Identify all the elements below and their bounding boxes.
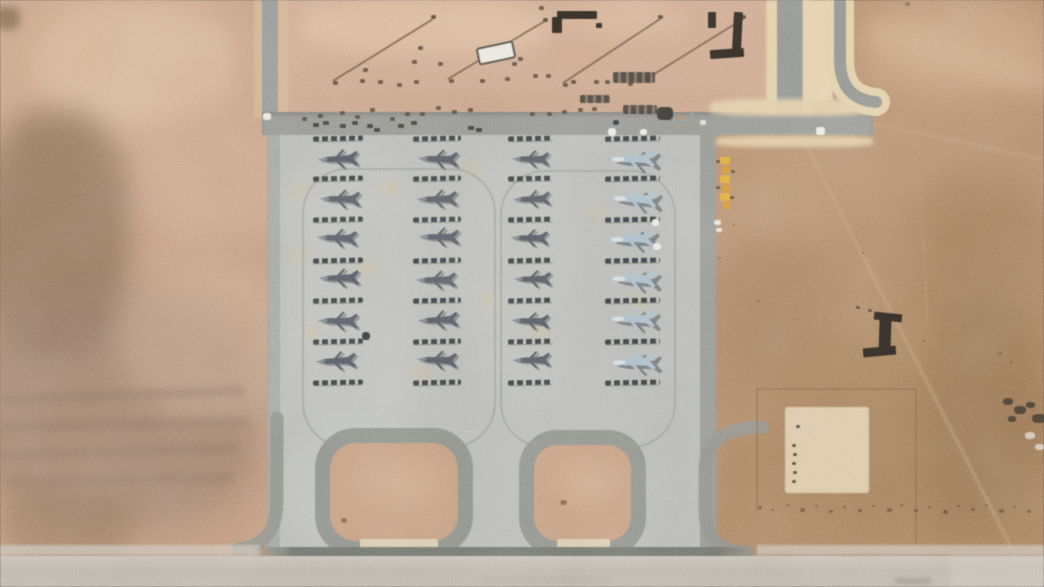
structure-speck [856, 306, 860, 309]
fighter-jet [317, 308, 359, 335]
tie-down-strip [413, 297, 461, 303]
yard-line-anchor [431, 15, 436, 19]
tie-down-strip [507, 298, 552, 304]
yard-vehicle [436, 106, 441, 110]
yard-vehicle [405, 112, 410, 116]
dark-debris [1014, 406, 1026, 414]
shelter-frame-structure [708, 12, 716, 28]
white-support-object [652, 219, 659, 226]
road-vehicle-white [816, 127, 825, 135]
compound-boundary [756, 388, 916, 390]
white-support-object [653, 243, 661, 250]
fighter-jet [318, 265, 360, 292]
fighter-jet [317, 145, 360, 172]
tie-down-strip [413, 338, 461, 344]
small-colored-object [690, 113, 694, 116]
yellow-crane-segment [720, 157, 730, 164]
yard-vehicle [418, 46, 423, 50]
fighter-jet [415, 267, 457, 293]
yard-vehicle [438, 62, 443, 66]
scrub-bush [758, 506, 762, 509]
tie-down-strip [313, 216, 363, 222]
shelter-frame-structure [557, 11, 597, 19]
yard-vehicle [480, 79, 485, 83]
apron-road-vehicle [352, 121, 358, 125]
pad-vehicle [796, 425, 800, 428]
dark-debris [1008, 416, 1016, 422]
loop-infield-dirt [534, 445, 631, 541]
scrub-bush [771, 509, 774, 511]
tie-down-strip [313, 338, 363, 344]
dark-debris [1003, 398, 1013, 405]
shelter-frame-structure [552, 17, 562, 33]
tie-down-strip [507, 176, 552, 182]
scrub-bush [800, 508, 805, 512]
dark-vehicle-blob [657, 107, 673, 120]
tie-down-strip [413, 257, 461, 263]
yard-vehicle [363, 68, 368, 72]
runway-edge-light [0, 545, 260, 555]
tie-down-strip [413, 135, 461, 141]
desert-track [873, 122, 1042, 161]
apron-bottom-edge [252, 547, 757, 556]
yard-vehicle [302, 117, 307, 121]
yard-vehicle [390, 117, 395, 121]
runway-light-corner [950, 556, 1044, 587]
tie-down-strip [313, 135, 363, 141]
white-object [714, 220, 721, 225]
small-colored-object [680, 116, 684, 119]
scrub-bush [999, 509, 1004, 513]
yard-vehicle [378, 80, 383, 84]
fighter-jet [417, 306, 460, 333]
crane-mark [716, 186, 720, 189]
terrain-patch [700, 240, 830, 380]
terrain-patch [748, 150, 868, 240]
yard-vehicle [468, 108, 473, 112]
tie-down-strip [413, 379, 461, 385]
runway-smudge [895, 578, 931, 584]
fighter-jet [418, 224, 460, 251]
runway-smudge [480, 577, 610, 584]
fighter-jet [511, 186, 551, 211]
pad-vehicle [792, 444, 796, 447]
fighter-jet [416, 186, 458, 213]
gray-dash-object [686, 124, 692, 127]
terrain-speckle [922, 340, 925, 342]
yard-light-patch [560, 0, 690, 40]
scrub-bush [815, 505, 818, 507]
yard-vehicle [452, 110, 457, 114]
apron-road-vehicle [374, 128, 380, 132]
scrub-bush [872, 505, 875, 507]
terrain-speckle [905, 2, 910, 6]
yard-vehicle [518, 57, 523, 61]
fighter-jet [510, 308, 550, 333]
apron-road-vehicle [323, 121, 329, 125]
scrub-bush [914, 509, 918, 512]
yellow-crane-segment [720, 175, 730, 183]
light-debris [1035, 444, 1044, 450]
fighter-jet [509, 226, 548, 251]
crane-mark [731, 170, 735, 173]
apron-road-vehicle [340, 124, 346, 128]
pad-vehicle [793, 471, 797, 474]
apron-road-vehicle [313, 123, 319, 127]
tie-down-strip [507, 380, 552, 386]
yard-vehicle [539, 6, 544, 10]
gray-dash-object [677, 127, 683, 130]
yellow-crane-segment [722, 166, 730, 173]
fighter-jet [511, 348, 550, 373]
yard-vehicle [533, 74, 538, 78]
fighter-jet [417, 145, 460, 172]
scrub-bush [900, 504, 903, 506]
yard-vehicle [318, 114, 323, 118]
fighter-jet [606, 305, 658, 333]
white-object [716, 228, 722, 232]
yard-vehicle [360, 79, 365, 83]
terrain-speckle [998, 352, 1002, 355]
shelter-frame-structure [596, 23, 602, 28]
loop-infield-dirt [330, 443, 458, 541]
dark-support-object [362, 332, 370, 340]
fighter-jet [319, 186, 361, 213]
fighter-jet [606, 145, 658, 174]
yellow-crane-segment [723, 202, 730, 209]
fighter-jet [605, 224, 658, 254]
scrub-bush [858, 509, 862, 512]
yard-vehicle [530, 112, 535, 116]
road-shoulder-cream [803, 0, 833, 102]
dirt-speck [560, 500, 567, 505]
apron-road-vehicle [398, 124, 404, 128]
yard-vehicle [397, 83, 402, 87]
apron-road-vehicle [476, 128, 482, 132]
tie-down-strip [413, 216, 461, 222]
yard-vehicle [512, 62, 517, 66]
yard-vehicle [414, 80, 419, 84]
yard-vehicle [340, 111, 345, 115]
tie-down-strip [313, 175, 363, 181]
terrain-speckle [862, 252, 864, 254]
yard-vehicle [505, 77, 510, 81]
tie-down-strip [313, 297, 363, 303]
equipment-row [580, 95, 610, 103]
white-support-object [640, 129, 647, 135]
yard-vehicle [412, 60, 417, 64]
scrub-bush [843, 506, 846, 508]
scrub-bush [971, 508, 975, 511]
yellow-crane-segment [722, 185, 730, 192]
yard-vehicle [547, 112, 552, 116]
yard-vehicle [594, 80, 599, 84]
tie-down-strip [507, 136, 552, 142]
yard-vehicle [333, 81, 338, 85]
light-debris [1025, 432, 1035, 439]
road-vehicle-white [263, 113, 271, 120]
apron-road-vehicle [411, 121, 417, 125]
yard-vehicle [420, 112, 425, 116]
yard-vehicle [592, 107, 597, 111]
fighter-jet [607, 265, 659, 294]
crane-mark [716, 160, 720, 163]
yard-vehicle [571, 80, 576, 84]
tie-down-strip [313, 379, 363, 385]
apron-left-edge [267, 135, 280, 555]
i-beam-structure [863, 346, 897, 358]
yard-vehicle [605, 80, 610, 84]
fighter-jet [513, 267, 552, 291]
fighter-jet [416, 346, 459, 373]
tie-down-strip [413, 175, 461, 181]
satellite-image-airbase [0, 0, 1044, 587]
dark-debris [1032, 414, 1044, 423]
gray-dash-object [668, 124, 674, 127]
fighter-jet [607, 347, 660, 377]
equipment-row [613, 72, 655, 83]
fighter-jet [316, 224, 359, 251]
pad-vehicle [792, 480, 796, 483]
yard-vehicle [563, 83, 568, 87]
scrub-bush [1027, 510, 1031, 513]
dirt-speck [341, 518, 347, 523]
pad-vehicle [792, 462, 796, 465]
small-colored-object [700, 120, 706, 125]
scrub-bush [887, 508, 892, 512]
tie-down-strip [507, 217, 552, 223]
yard-line-anchor [543, 18, 548, 22]
terrain-speckle [733, 224, 735, 226]
apron-road-vehicle [367, 124, 373, 128]
scrub-bush [786, 504, 789, 506]
runway-edge-light [757, 545, 1044, 555]
pad-vehicle [793, 453, 797, 456]
yard-line-anchor [658, 15, 663, 19]
terrain-patch [0, 6, 20, 30]
equipment-row [623, 105, 657, 114]
yard-vehicle [578, 108, 583, 112]
road-shoulder-cream [710, 99, 873, 116]
compound-boundary [915, 388, 917, 546]
yard-light-patch [285, 92, 765, 114]
yard-vehicle [370, 108, 375, 112]
apron-right-edge [700, 135, 716, 555]
road-shoulder-cream [716, 136, 873, 147]
fighter-jet [315, 347, 358, 374]
compound-boundary [756, 388, 758, 510]
dark-support-object [613, 120, 619, 125]
apron-road-vehicle [468, 126, 474, 130]
fighter-jet [608, 184, 661, 214]
yard-vehicle [449, 79, 454, 83]
taxi-road-left-vertical [262, 0, 278, 116]
tie-down-strip [507, 339, 552, 345]
scrub-bush [943, 510, 948, 514]
structure-speck [868, 309, 872, 312]
tie-down-strip [313, 257, 363, 263]
yard-vehicle [355, 115, 360, 119]
photo-layer [0, 0, 1044, 587]
terrain-patch [920, 300, 1044, 530]
crane-mark [730, 196, 734, 199]
dark-debris [1026, 402, 1035, 408]
fighter-jet [510, 147, 549, 172]
yard-vehicle [546, 74, 551, 78]
cleared-pad [785, 407, 869, 493]
scrub-bush [928, 506, 931, 508]
white-support-object [608, 128, 616, 136]
tie-down-strip [507, 258, 552, 264]
yard-vehicle [562, 110, 567, 114]
yellow-crane-segment [720, 193, 730, 201]
scrub-bush [829, 510, 833, 513]
